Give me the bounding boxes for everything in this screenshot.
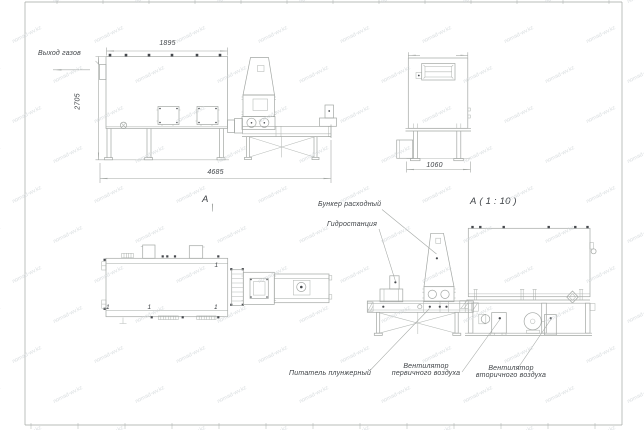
flange-stack-plan: [232, 270, 244, 306]
inspection-door: [157, 107, 181, 127]
secondary-fan-label: Вентилятор вторичного воздуха: [469, 365, 553, 380]
ash-box: [397, 140, 413, 158]
feeder-truss: [374, 312, 461, 335]
hydrostation-unit: [380, 276, 403, 302]
position-marker: 1: [148, 304, 152, 311]
lifting-eyelet: [590, 243, 596, 254]
primary-air-fan: [479, 313, 507, 336]
dimension-2705: 2705: [75, 87, 82, 117]
dimension-furnace-width: [107, 48, 228, 56]
end-view: [397, 52, 471, 172]
position-marker: 1: [106, 304, 110, 311]
drawing-sheet: Выход газов 1895 2705 4685 А 1060 А ( 1 …: [0, 0, 644, 430]
support-legs: [104, 129, 229, 160]
inspection-door: [196, 107, 220, 127]
bolt-markers: [471, 226, 588, 228]
feed-hopper: [422, 233, 455, 301]
gas-outlet-label: Выход газов: [38, 50, 81, 57]
view-a-label: А: [202, 194, 209, 205]
dimension-4685: 4685: [195, 169, 236, 176]
secondary-air-fan: [524, 313, 556, 335]
primary-fan-label-line2: первичного воздуха: [384, 370, 468, 378]
primary-fan-label-line1: Вентилятор: [384, 363, 468, 371]
plan-view: [102, 245, 332, 324]
front-elevation-view: [53, 48, 337, 212]
secondary-fan-label-line1: Вентилятор: [469, 365, 553, 373]
secondary-fan-label-line2: вторичного воздуха: [469, 372, 553, 380]
hydrostation-column: [320, 105, 337, 126]
position-marker: 1: [215, 262, 219, 269]
plunger-feeder-body: [367, 301, 478, 312]
feeder-conveyor: [242, 125, 331, 139]
datum-mark: [120, 318, 127, 324]
plunger-feeder-label: Питатель плунжерный: [289, 370, 371, 377]
conveyor-truss: [245, 137, 320, 160]
bolt-markers: [104, 255, 244, 318]
end-door: [416, 64, 455, 81]
anchor-bolts: [474, 289, 584, 300]
end-base-and-legs: [406, 124, 472, 161]
outlet-flange-plan: [122, 253, 134, 257]
leader-lines: [370, 210, 551, 373]
dimension-furnace-height: [96, 57, 106, 160]
primary-fan-label: Вентилятор первичного воздуха: [384, 363, 468, 378]
dimension-overall-length: [100, 140, 331, 183]
dimension-1895: 1895: [147, 40, 188, 47]
furnace-feed-pipe: [228, 119, 243, 134]
gas-outlet-flange: [96, 61, 107, 80]
plunger-feeder-plan: [242, 272, 277, 304]
end-top-dimension-marks: [408, 52, 468, 58]
hydrostation-label: Гидростанция: [327, 221, 377, 228]
detail-view-a: [367, 210, 596, 373]
position-marker: 1: [214, 304, 218, 311]
feeder-housing-plan: [274, 274, 332, 303]
bunker-label: Бункер расходный: [318, 201, 381, 208]
valve-fitting: [120, 122, 126, 128]
hopper-tower: [242, 58, 277, 130]
dimension-1060: 1060: [414, 162, 455, 169]
bolt-markers: [109, 54, 222, 57]
detail-a-title: А ( 1 : 10 ): [470, 196, 517, 207]
